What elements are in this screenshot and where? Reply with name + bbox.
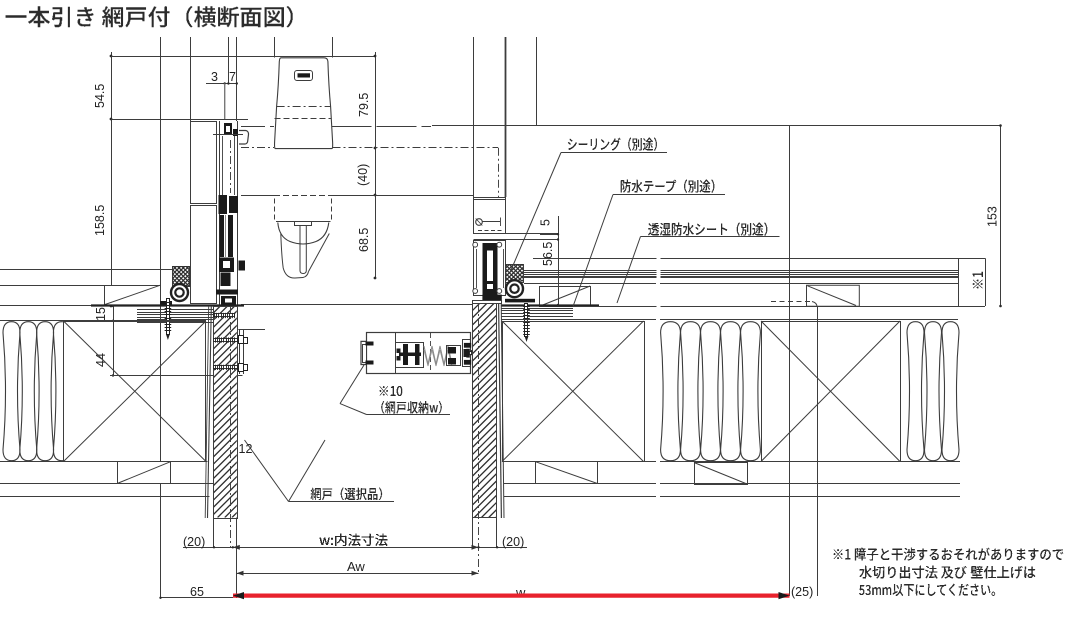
svg-text:Aw: Aw — [347, 559, 365, 574]
svg-text:44: 44 — [94, 353, 108, 367]
svg-text:65: 65 — [190, 585, 204, 599]
svg-text:15: 15 — [94, 307, 108, 321]
svg-text:(20): (20) — [183, 535, 205, 549]
svg-text:158.5: 158.5 — [93, 205, 107, 236]
svg-text:153: 153 — [986, 206, 1000, 227]
svg-text:3: 3 — [211, 70, 218, 84]
svg-text:(40): (40) — [356, 164, 370, 186]
svg-text:(25): (25) — [791, 585, 813, 599]
svg-text:54.5: 54.5 — [93, 84, 107, 108]
svg-text:5: 5 — [539, 219, 553, 226]
svg-text:68.5: 68.5 — [357, 228, 371, 252]
svg-text:(20): (20) — [502, 535, 524, 549]
svg-text:7: 7 — [229, 70, 236, 84]
svg-text:w: w — [515, 585, 526, 600]
svg-text:79.5: 79.5 — [357, 93, 371, 117]
svg-text:56.5: 56.5 — [541, 242, 555, 266]
